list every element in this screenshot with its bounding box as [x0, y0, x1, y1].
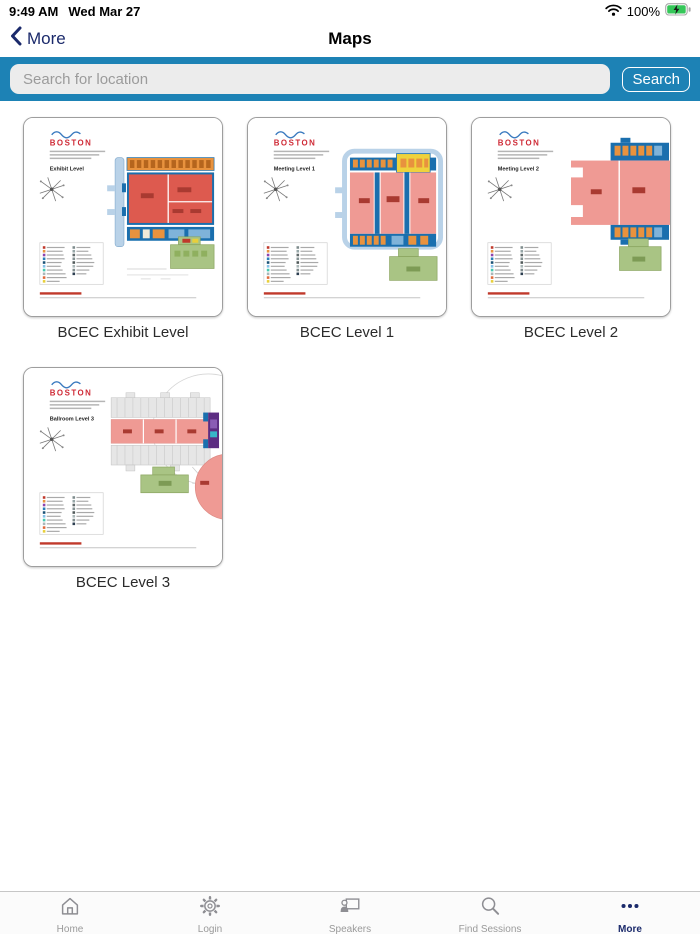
app-window: 9:49 AM Wed Mar 27 100%	[0, 0, 700, 934]
map-caption: BCEC Level 3	[23, 574, 223, 591]
map-cell: BOSTON Ballroom Level 3	[23, 367, 223, 591]
status-time: 9:49 AM	[9, 4, 58, 19]
search-input[interactable]	[10, 64, 610, 94]
search-button[interactable]: Search	[622, 67, 690, 92]
tab-label: Login	[198, 924, 222, 934]
map-cell: BOSTON Meeting Level 2	[471, 117, 671, 341]
tab-home[interactable]: Home	[0, 892, 140, 934]
search-icon	[477, 894, 503, 923]
svg-text:BOSTON: BOSTON	[274, 139, 317, 148]
svg-text:BOSTON: BOSTON	[498, 139, 541, 148]
map-card-exhibit-level[interactable]: BOSTON Exhibit Level	[23, 117, 223, 317]
map-thumbnail-level-3: BOSTON Ballroom Level 3	[24, 368, 222, 566]
nav-bar: More Maps	[0, 22, 700, 57]
tab-label: More	[618, 924, 642, 934]
map-cell: BOSTON Exhibit Level	[23, 117, 223, 341]
svg-text:BOSTON: BOSTON	[50, 389, 93, 398]
map-thumbnail-exhibit-level: BOSTON Exhibit Level	[24, 118, 222, 316]
map-card-level-1[interactable]: BOSTON Meeting Level 1	[247, 117, 447, 317]
battery-charging-icon	[665, 3, 691, 19]
map-caption: BCEC Exhibit Level	[23, 324, 223, 341]
battery-percent: 100%	[627, 4, 660, 19]
svg-text:Meeting Level 2: Meeting Level 2	[498, 166, 539, 172]
svg-text:Exhibit Level: Exhibit Level	[50, 166, 85, 172]
tab-bar: Home Login	[0, 891, 700, 934]
tab-label: Speakers	[329, 924, 371, 934]
tab-speakers[interactable]: Speakers	[280, 892, 420, 934]
gear-icon	[197, 894, 223, 923]
tab-label: Home	[57, 924, 84, 934]
tab-label: Find Sessions	[459, 924, 522, 934]
maps-grid: BOSTON Exhibit Level	[0, 101, 700, 891]
ellipsis-icon	[617, 894, 643, 923]
svg-text:BOSTON: BOSTON	[50, 139, 93, 148]
status-bar: 9:49 AM Wed Mar 27 100%	[0, 0, 700, 22]
svg-text:Meeting Level 1: Meeting Level 1	[274, 166, 315, 172]
tab-more[interactable]: More	[560, 892, 700, 934]
map-card-level-3[interactable]: BOSTON Ballroom Level 3	[23, 367, 223, 567]
home-icon	[57, 894, 83, 923]
map-caption: BCEC Level 2	[471, 324, 671, 341]
map-caption: BCEC Level 1	[247, 324, 447, 341]
page-title: Maps	[0, 29, 700, 49]
search-bar: Search	[0, 57, 700, 101]
map-thumbnail-level-1: BOSTON Meeting Level 1	[248, 118, 446, 316]
status-date: Wed Mar 27	[68, 4, 140, 19]
tab-find-sessions[interactable]: Find Sessions	[420, 892, 560, 934]
wifi-icon	[605, 4, 622, 19]
map-thumbnail-level-2: BOSTON Meeting Level 2	[472, 118, 670, 316]
map-card-level-2[interactable]: BOSTON Meeting Level 2	[471, 117, 671, 317]
presenter-icon	[337, 894, 363, 923]
svg-text:Ballroom Level 3: Ballroom Level 3	[50, 416, 94, 422]
tab-login[interactable]: Login	[140, 892, 280, 934]
map-cell: BOSTON Meeting Level 1	[247, 117, 447, 341]
